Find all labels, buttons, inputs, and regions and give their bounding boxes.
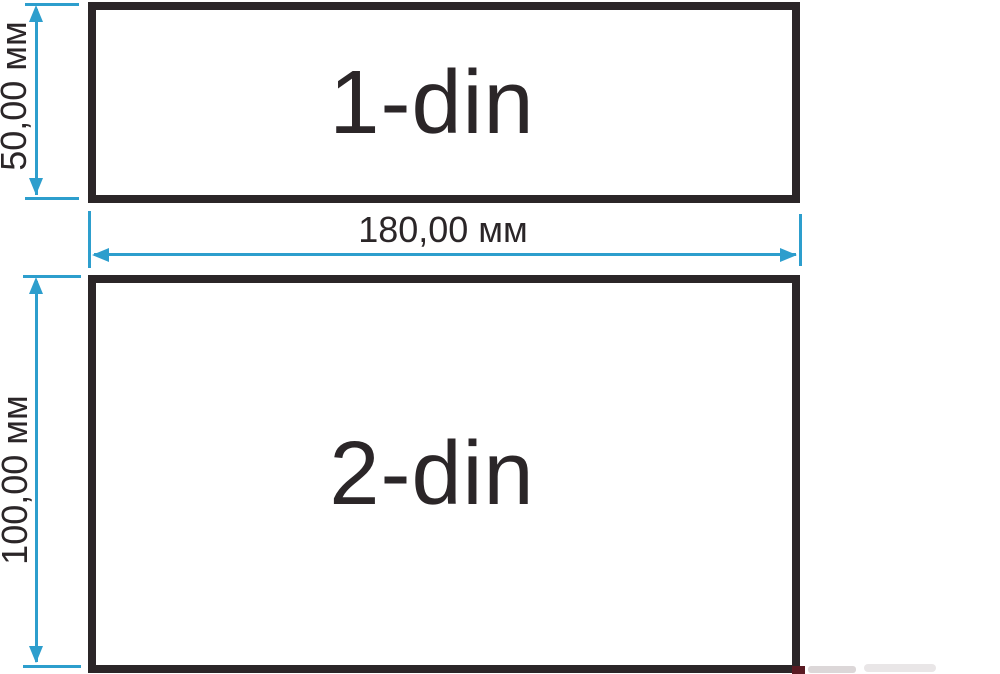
dim180-line <box>94 253 796 256</box>
din1-box: 1-din <box>88 2 800 203</box>
watermark-smudge <box>808 666 856 673</box>
din2-label: 2-din <box>329 429 534 519</box>
arrow-left-icon <box>92 248 109 262</box>
arrow-down-icon <box>29 178 43 195</box>
dim50-label: 50,00 мм <box>0 16 32 176</box>
dim100-extension-bottom <box>23 665 81 668</box>
dim50-line <box>35 9 38 195</box>
dim180-label: 180,00 мм <box>290 211 596 249</box>
din2-box: 2-din <box>88 275 800 673</box>
arrow-up-icon <box>29 277 43 294</box>
dim100-line <box>35 281 38 662</box>
dim180-extension-right <box>799 214 802 266</box>
dim180-extension-left <box>88 211 91 268</box>
watermark-smudge <box>864 664 936 672</box>
watermark-remnant <box>792 666 805 674</box>
dim100-label: 100,00 мм <box>0 370 33 590</box>
arrow-right-icon <box>780 248 797 262</box>
din1-label: 1-din <box>329 58 534 148</box>
diagram-canvas: 1-din 2-din 50,00 мм 180,00 мм 100,00 мм <box>0 0 1000 674</box>
dim50-extension-bottom <box>25 197 79 200</box>
arrow-down-icon <box>29 646 43 663</box>
